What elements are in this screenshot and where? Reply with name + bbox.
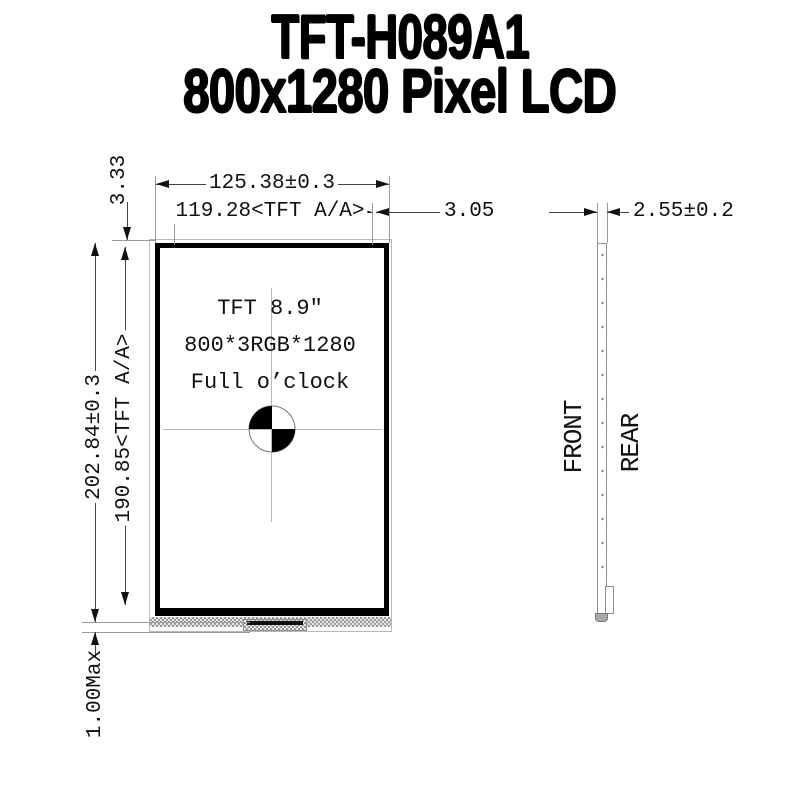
screen-resolution-label: 800*3RGB*1280	[184, 333, 356, 359]
dim-thickness: 2.55±0.2	[633, 200, 734, 224]
dim-right-border: 3.05	[444, 200, 494, 224]
dim-arrow	[376, 180, 389, 188]
dim-active-height: 190.85<TFT A/A>	[113, 330, 137, 525]
alignment-target-icon	[248, 405, 296, 453]
drawing-canvas: TFT-H089A1 800x1280 Pixel LCD TFT 8.9″ 8…	[0, 0, 800, 800]
dim-arrow	[376, 208, 389, 216]
dim-outer-width: 125.38±0.3	[206, 172, 338, 196]
extension-line	[82, 632, 250, 633]
dim-arrow	[607, 208, 620, 216]
drawing-title-resolution-text: 800x1280 Pixel LCD	[183, 60, 616, 122]
extension-line	[82, 622, 250, 623]
extension-line	[389, 176, 390, 243]
screen-size-label: TFT 8.9″	[217, 296, 323, 322]
screen-mode-label: Full o’clock	[191, 370, 349, 396]
extension-line	[372, 203, 373, 245]
side-view-connector	[605, 586, 614, 614]
dim-arrow	[156, 180, 169, 188]
dim-top-border: 3.33	[108, 155, 132, 205]
dim-arrow	[123, 227, 131, 240]
drawing-title-resolution: 800x1280 Pixel LCD	[0, 60, 800, 122]
dim-arrow	[584, 208, 597, 216]
label-rear: REAR	[616, 414, 646, 472]
dim-arrow	[91, 243, 99, 256]
extension-line	[597, 203, 598, 243]
side-view-end-cap	[595, 613, 608, 622]
dim-arrow	[121, 592, 129, 605]
side-view-dots	[600, 253, 605, 588]
dim-arrow	[91, 632, 99, 645]
dim-bottom-max: 1.00Max	[84, 650, 108, 738]
dim-active-width: 119.28<TFT A/A>	[172, 200, 367, 224]
fpc-connector-bar	[247, 621, 303, 625]
dim-arrow	[91, 609, 99, 622]
dim-arrow	[121, 247, 129, 260]
label-front: FRONT	[559, 400, 589, 473]
dim-outer-height: 202.84±0.3	[83, 371, 107, 503]
extension-line	[112, 240, 155, 241]
